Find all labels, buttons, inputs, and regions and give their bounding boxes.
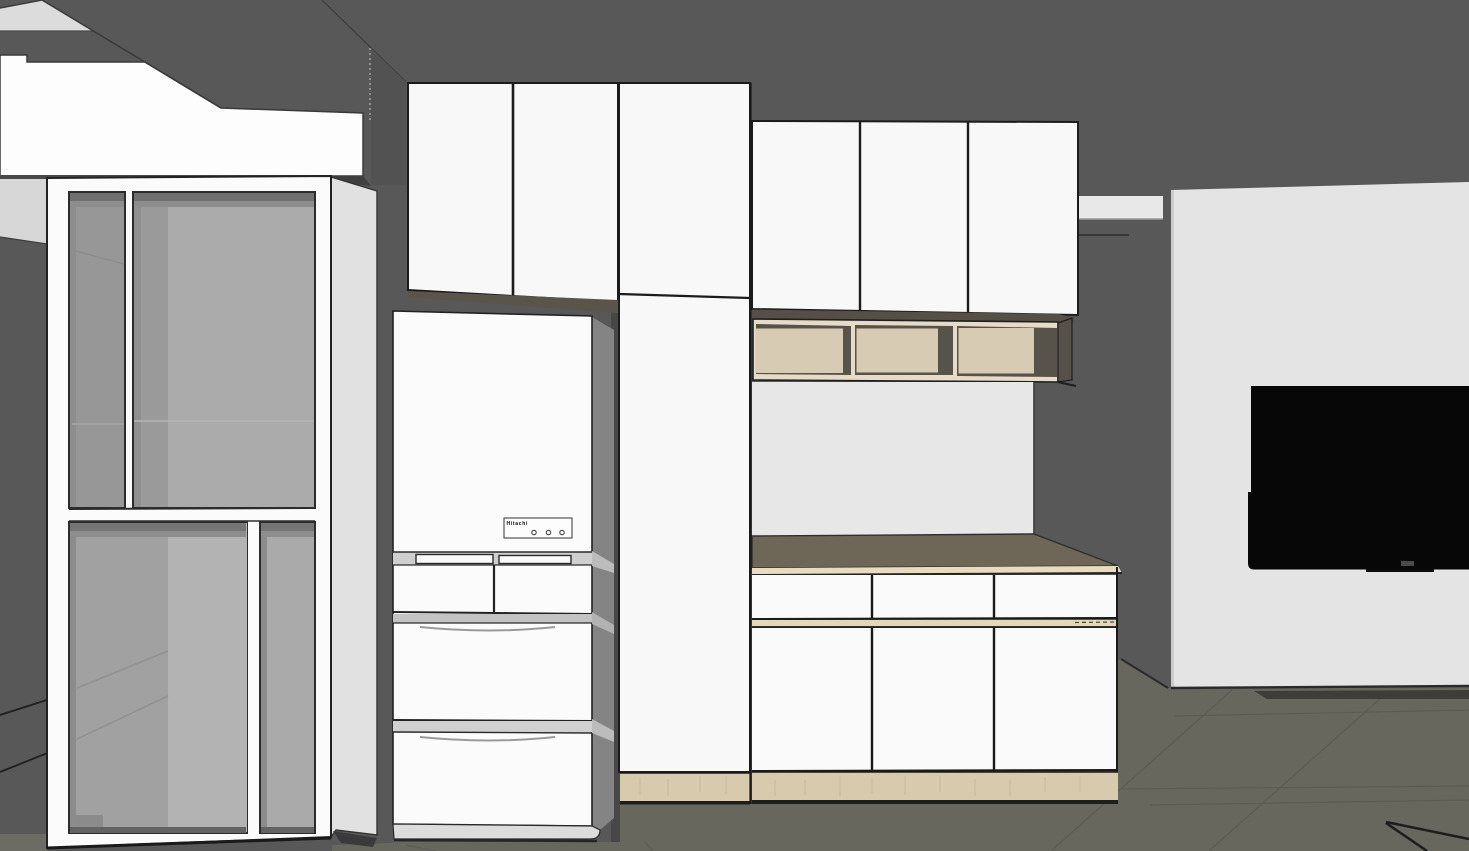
svg-text:Hitachi: Hitachi xyxy=(507,521,529,527)
